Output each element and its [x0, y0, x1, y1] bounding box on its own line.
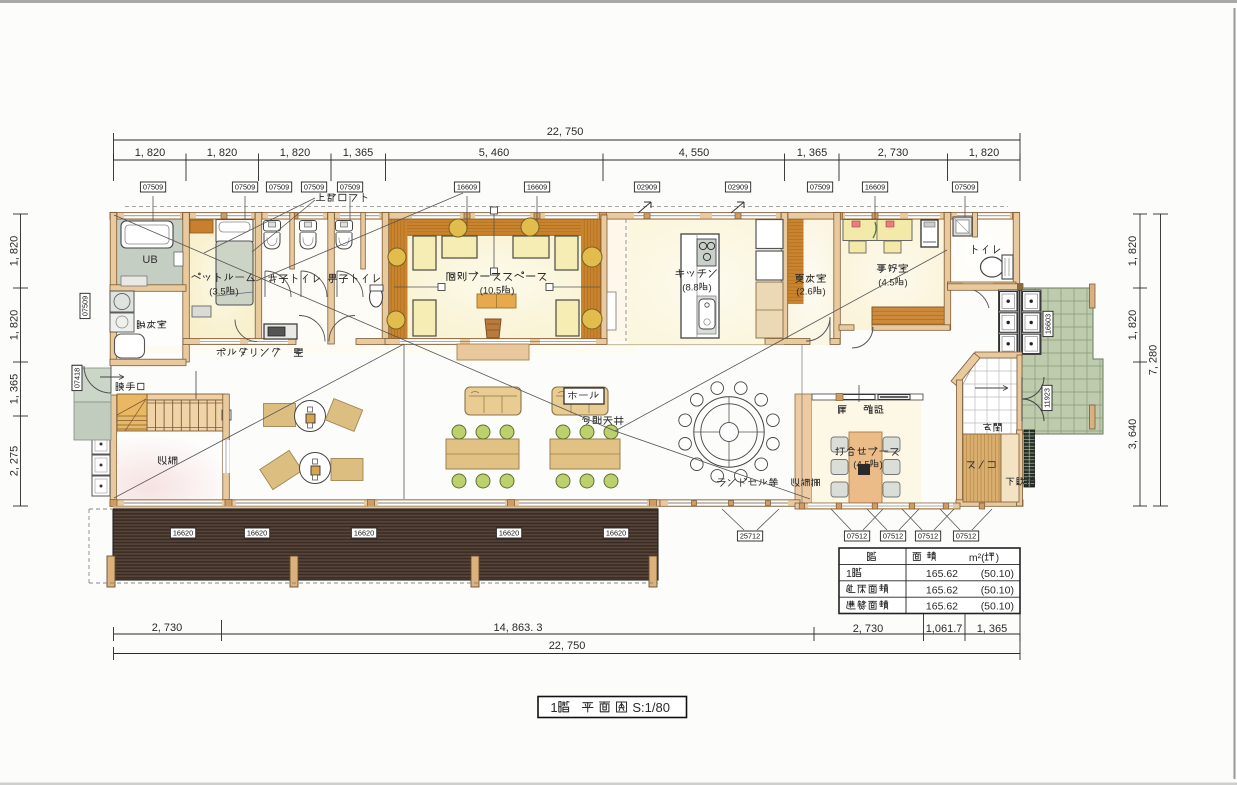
svg-text:07509: 07509 — [304, 183, 324, 192]
svg-text:14, 863. 3: 14, 863. 3 — [494, 622, 543, 634]
svg-text:7, 280: 7, 280 — [1148, 345, 1160, 376]
svg-text:): ) — [823, 286, 826, 297]
svg-text:1, 820: 1, 820 — [1127, 236, 1139, 267]
svg-text:1, 820: 1, 820 — [1127, 310, 1139, 341]
svg-text:16603: 16603 — [1044, 314, 1053, 334]
svg-text:): ) — [996, 552, 1000, 564]
svg-text:(4.5: (4.5 — [853, 459, 869, 470]
svg-text:S:1/80: S:1/80 — [632, 700, 670, 715]
svg-text:): ) — [905, 277, 908, 288]
svg-text:02909: 02909 — [728, 183, 748, 192]
svg-text:07512: 07512 — [956, 532, 976, 541]
svg-text:16609: 16609 — [457, 183, 477, 192]
svg-text:5, 460: 5, 460 — [479, 147, 510, 159]
svg-text:1, 820: 1, 820 — [9, 236, 21, 267]
svg-text:1, 365: 1, 365 — [9, 374, 21, 405]
svg-text:07512: 07512 — [883, 532, 903, 541]
svg-text:07509: 07509 — [81, 296, 90, 316]
svg-text:1, 820: 1, 820 — [9, 310, 21, 341]
svg-text:07418: 07418 — [73, 368, 82, 388]
svg-text:22, 750: 22, 750 — [549, 640, 586, 652]
svg-text:16620: 16620 — [606, 529, 626, 538]
svg-text:165.62: 165.62 — [926, 601, 958, 613]
svg-text:(50.10): (50.10) — [981, 584, 1014, 596]
svg-text:16609: 16609 — [527, 183, 547, 192]
svg-text:07509: 07509 — [143, 183, 163, 192]
svg-text:1, 820: 1, 820 — [135, 147, 166, 159]
svg-text:1: 1 — [846, 568, 852, 580]
svg-text:25712: 25712 — [740, 532, 760, 541]
svg-text:1, 820: 1, 820 — [207, 147, 238, 159]
svg-text:16620: 16620 — [499, 529, 519, 538]
svg-text:2, 275: 2, 275 — [9, 446, 21, 477]
svg-text:07509: 07509 — [810, 183, 830, 192]
svg-text:(8.8: (8.8 — [682, 282, 698, 293]
svg-text:07509: 07509 — [235, 183, 255, 192]
svg-text:16620: 16620 — [247, 529, 267, 538]
svg-text:(2.6: (2.6 — [796, 286, 812, 297]
svg-text:02909: 02909 — [637, 183, 657, 192]
svg-text:1, 820: 1, 820 — [280, 147, 311, 159]
svg-text:07509: 07509 — [955, 183, 975, 192]
svg-text:07509: 07509 — [340, 183, 360, 192]
svg-text:16620: 16620 — [354, 529, 374, 538]
svg-text:(50.10): (50.10) — [981, 568, 1014, 580]
svg-text:16620: 16620 — [173, 529, 193, 538]
svg-text:16609: 16609 — [865, 183, 885, 192]
svg-text:): ) — [880, 459, 883, 470]
svg-text:07509: 07509 — [269, 183, 289, 192]
svg-text:(10.5: (10.5 — [480, 285, 502, 296]
svg-text:): ) — [236, 286, 239, 297]
svg-text:UB: UB — [142, 254, 157, 266]
svg-text:3, 640: 3, 640 — [1127, 419, 1139, 450]
svg-text:1, 820: 1, 820 — [969, 147, 1000, 159]
svg-text:1, 365: 1, 365 — [343, 147, 374, 159]
svg-text:(50.10): (50.10) — [981, 601, 1014, 613]
svg-text:1, 365: 1, 365 — [797, 147, 828, 159]
svg-text:165.62: 165.62 — [926, 584, 958, 596]
svg-text:2, 730: 2, 730 — [878, 147, 909, 159]
svg-text:07512: 07512 — [847, 532, 867, 541]
svg-text:07512: 07512 — [918, 532, 938, 541]
svg-text:11923: 11923 — [1043, 388, 1052, 408]
svg-text:4, 550: 4, 550 — [679, 147, 710, 159]
svg-text:1,061.7: 1,061.7 — [926, 623, 963, 635]
svg-text:2, 730: 2, 730 — [853, 623, 884, 635]
svg-text:1: 1 — [550, 700, 557, 715]
svg-text:2, 730: 2, 730 — [152, 622, 183, 634]
svg-text:165.62: 165.62 — [926, 568, 958, 580]
svg-text:): ) — [511, 285, 514, 296]
svg-text:22, 750: 22, 750 — [547, 126, 584, 138]
svg-text:1, 365: 1, 365 — [977, 623, 1008, 635]
svg-text:m²(: m²( — [969, 552, 985, 564]
svg-text:): ) — [709, 282, 712, 293]
svg-text:(3.5: (3.5 — [209, 286, 225, 297]
